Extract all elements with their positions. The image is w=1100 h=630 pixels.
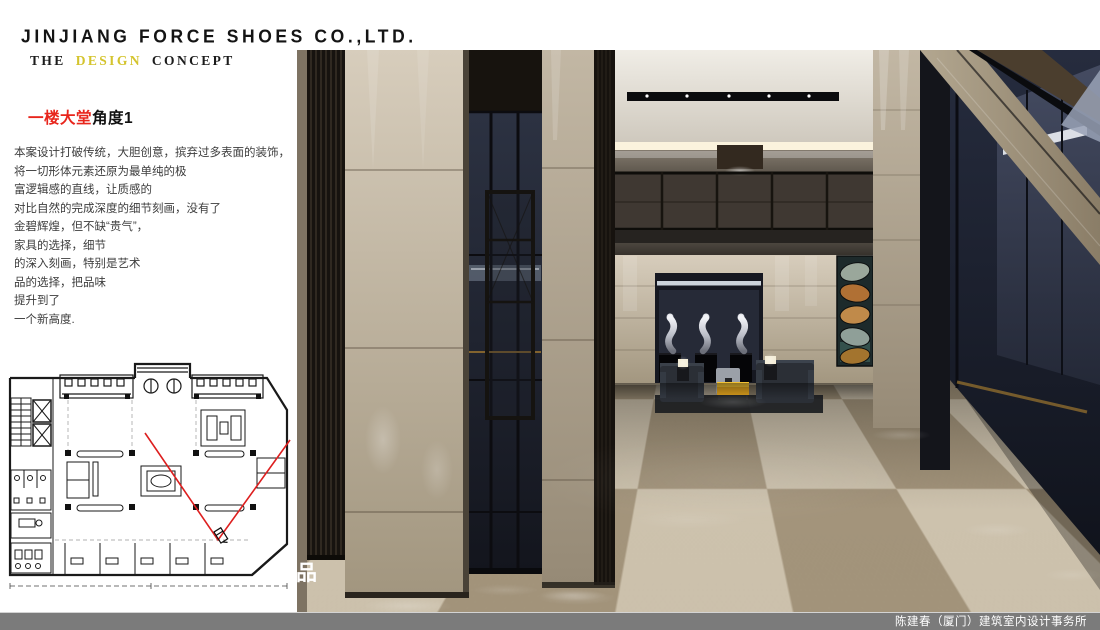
- wall-sliver-left: [297, 50, 307, 612]
- table-lamp-left: [676, 356, 690, 370]
- black-frame-screen: [487, 192, 533, 418]
- company-title: JINJIANG FORCE SHOES CO.,LTD.: [21, 25, 417, 47]
- mezzanine: [607, 142, 882, 257]
- designer-credit: 陈建春（厦门）建筑室内设计事务所: [895, 614, 1087, 630]
- desc-line: 对比自然的完成深度的细节刻画，没有了: [14, 200, 296, 219]
- column-left: [345, 50, 469, 598]
- desc-line: 富逻辑感的直线，让质感的: [14, 181, 296, 200]
- desc-line: 提升到了: [14, 292, 296, 311]
- concept-description: 本案设计打破传统，大胆创意，摈弃过多表面的装饰， 将一切形体元素还原为最单纯的极…: [14, 144, 296, 329]
- subtitle-design: DESIGN: [76, 53, 142, 68]
- pillar-right: [873, 50, 950, 470]
- desc-line: 品的选择，把品味: [14, 274, 296, 293]
- lobby-rendering: [297, 50, 1100, 612]
- desc-line: 一个新高度.: [14, 311, 296, 330]
- subtitle-the: THE: [30, 53, 66, 68]
- desc-line: 将一切形体元素还原为最单纯的极: [14, 163, 296, 182]
- desc-line: 家具的选择，细节: [14, 237, 296, 256]
- table-lamp-right: [763, 353, 777, 367]
- leaf-art-panel: [837, 256, 873, 366]
- view-heading: 一楼大堂角度1: [28, 106, 133, 128]
- mezzanine-railing: [607, 172, 882, 230]
- view-heading-location: 一楼大堂: [28, 110, 92, 127]
- pendant-light-box: [717, 145, 763, 169]
- desc-line: 的深入刻画，特别是艺术: [14, 255, 296, 274]
- presentation-board: JINJIANG FORCE SHOES CO.,LTD. THEDESIGNC…: [0, 0, 1100, 630]
- footer-credit-bar: 陈建春（厦门）建筑室内设计事务所: [0, 612, 1100, 630]
- watermark-character: 品: [296, 562, 317, 586]
- desc-line: 金碧辉煌，但不缺“贵气”，: [14, 218, 296, 237]
- design-concept-subtitle: THEDESIGNCONCEPT: [30, 53, 235, 69]
- slat-screen: [307, 50, 345, 560]
- subtitle-concept: CONCEPT: [152, 53, 235, 68]
- desc-line: 本案设计打破传统，大胆创意，摈弃过多表面的装饰，: [14, 144, 296, 163]
- floor-plan-drawing: [5, 358, 295, 598]
- lobby-rendering-overlay: [297, 50, 1100, 612]
- view-heading-angle: 角度1: [92, 110, 133, 127]
- column-center: [538, 50, 615, 601]
